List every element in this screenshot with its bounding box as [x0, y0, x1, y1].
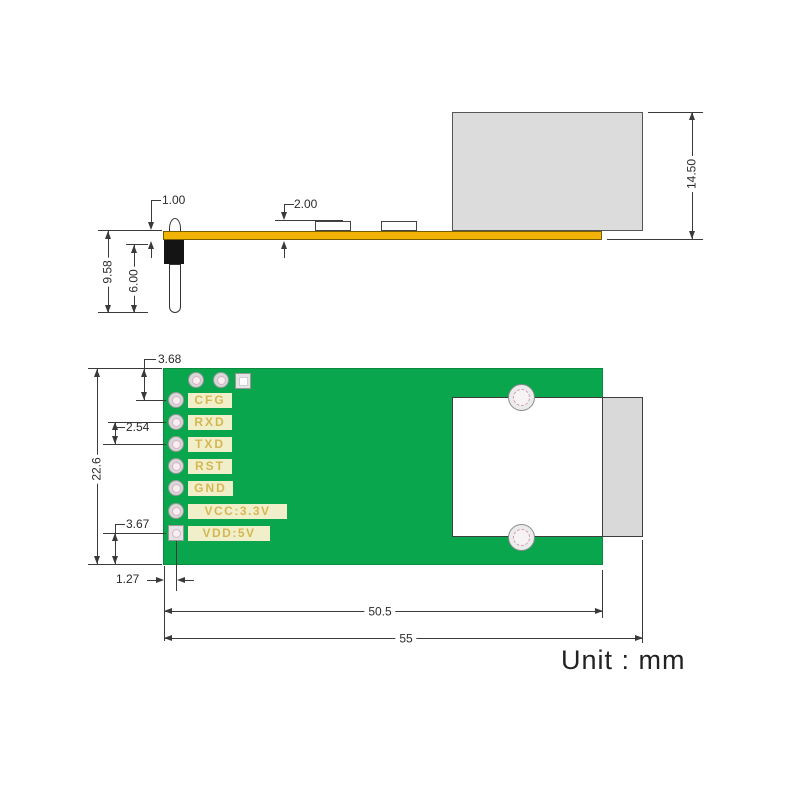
leader-line	[284, 249, 285, 258]
leader-line	[144, 359, 156, 360]
pin-header-pin	[169, 264, 181, 313]
dim-pin1-offset-label: 3.68	[158, 353, 181, 366]
pin-pad-gnd	[168, 480, 184, 496]
arrow-down-icon	[105, 305, 111, 313]
dim-pin-edge-offset-label: 1.27	[116, 573, 139, 586]
arrow-up-icon	[112, 533, 118, 541]
pin-pad-txd	[168, 436, 184, 452]
pin-pad-vdd	[168, 525, 184, 541]
technical-drawing-canvas: 9.58 6.00 1.00 2.00 14.50 CFG RXD	[0, 0, 800, 800]
jumper-pad-square	[235, 373, 251, 389]
extension-line-overhang-right-edge	[642, 540, 643, 643]
arrow-down-icon	[689, 231, 695, 239]
smd-component	[381, 221, 417, 231]
pin-label: RST	[188, 459, 232, 474]
pad-hole	[172, 507, 181, 516]
leader-line	[115, 524, 125, 525]
pad-hole	[172, 462, 181, 471]
pin-label: CFG	[188, 393, 232, 408]
arrow-right-icon	[635, 635, 643, 641]
extension-line-board-bottom-right	[607, 239, 703, 240]
pad-hole	[172, 529, 181, 538]
smd-component	[315, 221, 351, 231]
dim-board-thickness-label: 1.00	[162, 194, 185, 207]
extension-line-pin-column	[176, 541, 177, 591]
arrow-right-icon	[595, 608, 603, 614]
pad-hole	[239, 377, 248, 386]
rj45-footprint-top-view	[452, 397, 603, 537]
arrow-up-icon	[281, 241, 287, 249]
pad-hole	[172, 418, 181, 427]
arrow-left-icon	[164, 608, 172, 614]
leader-line	[151, 200, 161, 201]
pcb-board-side-view	[163, 231, 602, 240]
jumper-pad	[188, 372, 204, 388]
arrow-down-icon	[148, 222, 154, 230]
arrow-up-icon	[105, 231, 111, 239]
dim-pin-length-label: 6.00	[128, 266, 141, 295]
arrow-down-icon	[112, 436, 118, 444]
rj45-overhang-top-view	[601, 397, 643, 537]
extension-line-connector-top	[648, 112, 703, 113]
dim-connector-height-label: 14.50	[686, 156, 699, 192]
leader-line	[185, 580, 194, 581]
pad-hole	[172, 396, 181, 405]
pin-label: TXD	[188, 437, 232, 452]
dim-overall-height-label: 9.58	[102, 257, 115, 286]
arrow-up-icon	[689, 112, 695, 120]
arrow-down-icon	[131, 305, 137, 313]
arrow-up-icon	[148, 241, 154, 249]
pin-pad-rst	[168, 458, 184, 474]
mounting-hole-inner	[513, 389, 530, 406]
arrow-up-icon	[94, 369, 100, 377]
extension-line-pin1	[136, 400, 166, 401]
arrow-left-icon	[164, 635, 172, 641]
arrow-down-icon	[94, 556, 100, 564]
extension-line-housing-top	[126, 244, 148, 245]
leader-line	[151, 200, 152, 222]
pin-label: RXD	[188, 415, 232, 430]
pin-header-housing	[164, 240, 184, 264]
pad-hole	[192, 376, 201, 385]
extension-line-rxd	[108, 422, 166, 423]
extension-line-board-left-edge	[164, 566, 165, 641]
dim-component-height-label: 2.00	[294, 198, 317, 211]
pad-hole	[217, 376, 226, 385]
dim-board-length-label: 50.5	[364, 605, 395, 618]
arrow-right-icon	[156, 577, 164, 583]
arrow-down-icon	[281, 212, 287, 220]
extension-line-board-bottom-edge	[88, 564, 162, 565]
mounting-hole-bottom	[508, 524, 535, 551]
leader-line	[151, 249, 152, 258]
pin-pad-vcc	[168, 503, 184, 519]
dim-pin7-offset-label: 3.67	[126, 518, 149, 531]
mounting-hole-top	[508, 384, 535, 411]
arrow-down-icon	[141, 392, 147, 400]
unit-note: Unit : mm	[561, 645, 686, 676]
arrow-up-icon	[112, 422, 118, 430]
arrow-up-icon	[131, 245, 137, 253]
pad-hole	[172, 484, 181, 493]
rj45-connector-side-view	[452, 112, 643, 231]
arrow-left-icon	[177, 577, 185, 583]
arrow-down-icon	[112, 556, 118, 564]
pin-pad-cfg	[168, 392, 184, 408]
pin-label: GND	[188, 481, 233, 496]
mounting-hole-inner	[513, 529, 530, 546]
extension-line-txd	[103, 444, 166, 445]
pin-label: VDD:5V	[188, 526, 270, 541]
pin-pad-rxd	[168, 414, 184, 430]
dim-board-width-label: 22.6	[91, 454, 104, 483]
pad-hole	[172, 440, 181, 449]
pin-label: VCC:3.3V	[188, 504, 287, 519]
extension-line-vdd	[103, 533, 166, 534]
arrow-up-icon	[141, 369, 147, 377]
leader-line	[284, 204, 294, 205]
jumper-pad	[213, 372, 229, 388]
dim-overall-length-label: 55	[395, 632, 416, 645]
